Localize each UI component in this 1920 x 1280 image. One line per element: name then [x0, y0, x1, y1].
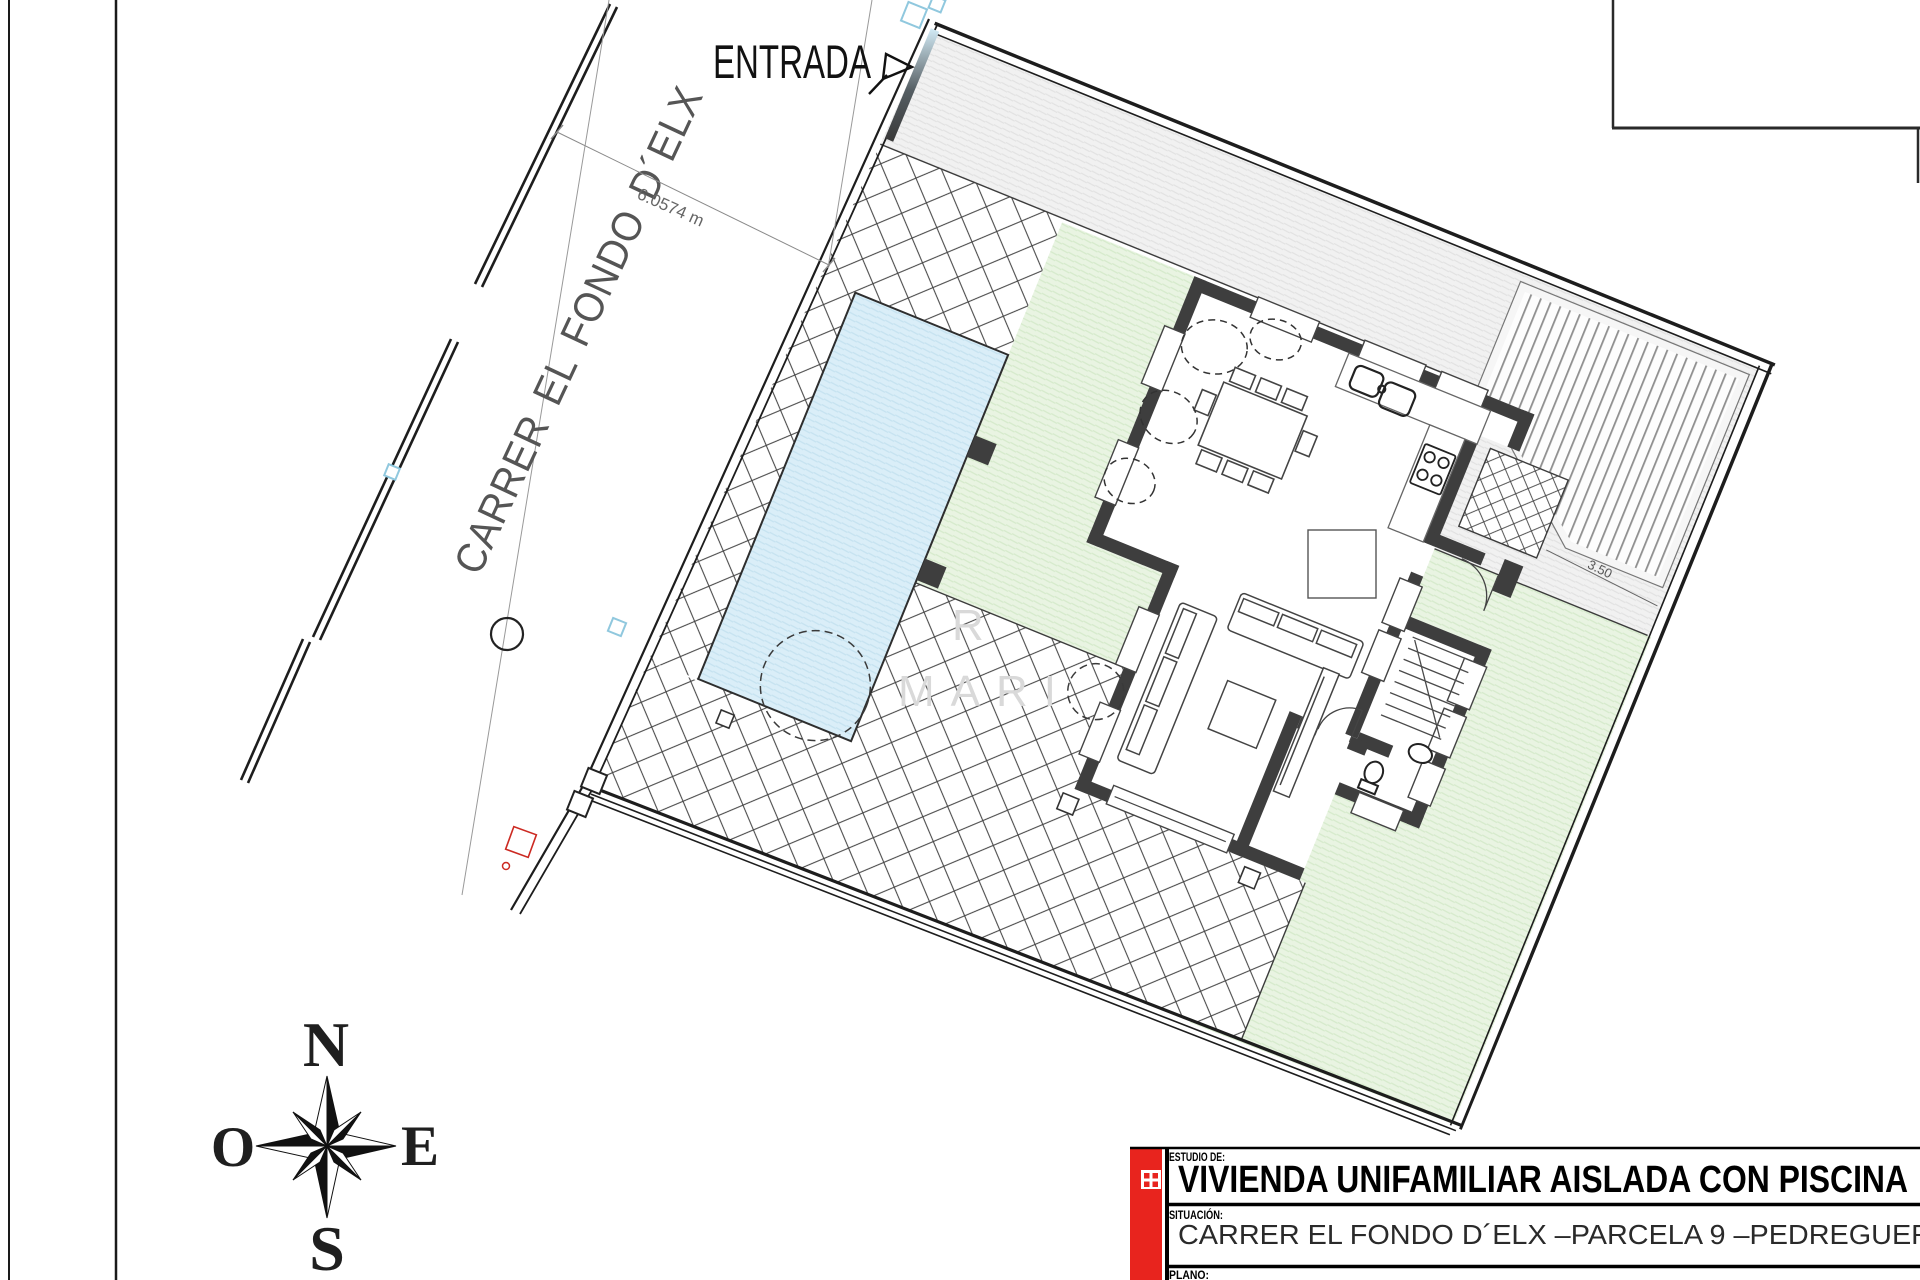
svg-text:MARI: MARI [898, 667, 1072, 716]
svg-text:VIVIENDA UNIFAMILIAR AISLADA C: VIVIENDA UNIFAMILIAR AISLADA CON PISCINA [1178, 1159, 1908, 1201]
svg-text:S: S [309, 1213, 345, 1280]
svg-text:O: O [211, 1116, 255, 1179]
svg-text:CARRER EL FONDO D´ELX –PARCELA: CARRER EL FONDO D´ELX –PARCELA 9 –PEDREG… [1178, 1219, 1920, 1250]
svg-text:ENTRADA: ENTRADA [713, 35, 871, 88]
svg-text:PLANO:: PLANO: [1169, 1268, 1209, 1280]
svg-text:E: E [401, 1115, 439, 1178]
svg-text:R: R [952, 601, 984, 650]
svg-text:N: N [303, 1009, 349, 1080]
